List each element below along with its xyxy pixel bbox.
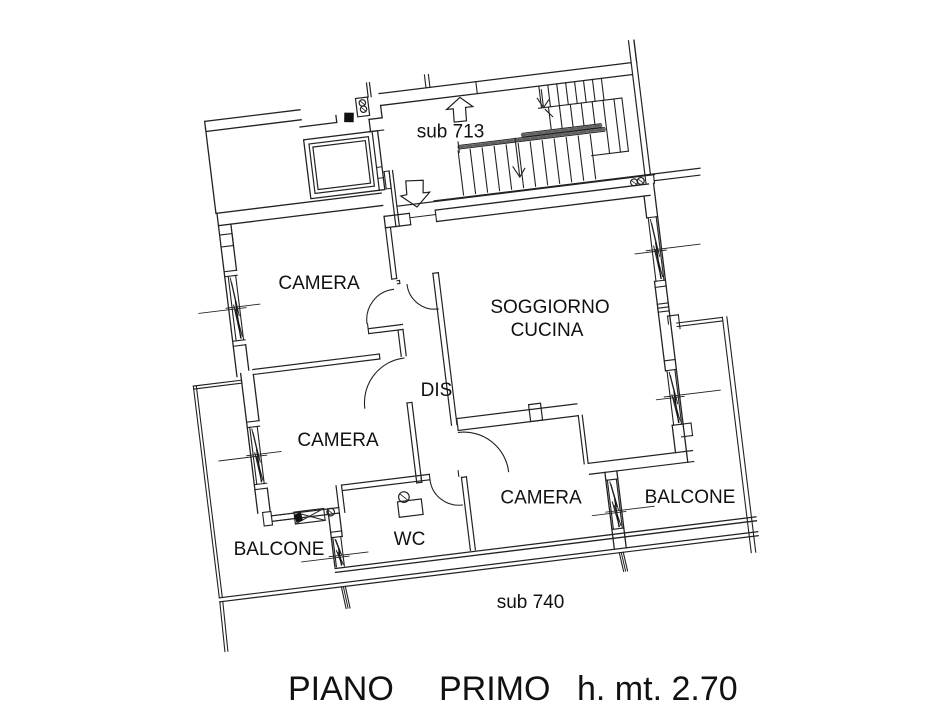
svg-text:sub 740: sub 740 <box>497 592 565 613</box>
svg-text:CUCINA: CUCINA <box>511 320 584 341</box>
svg-text:sub 713: sub 713 <box>417 122 485 143</box>
svg-text:BALCONE: BALCONE <box>645 487 736 508</box>
svg-text:h. mt. 2.70: h. mt. 2.70 <box>577 670 738 708</box>
svg-text:PIANO: PIANO <box>288 670 394 708</box>
svg-text:DIS: DIS <box>421 380 453 401</box>
svg-text:PRIMO: PRIMO <box>439 670 550 708</box>
svg-text:WC: WC <box>394 529 426 550</box>
svg-text:CAMERA: CAMERA <box>278 273 360 294</box>
svg-text:CAMERA: CAMERA <box>500 488 582 509</box>
svg-text:SOGGIORNO: SOGGIORNO <box>490 297 609 318</box>
svg-text:CAMERA: CAMERA <box>297 430 379 451</box>
svg-text:BALCONE: BALCONE <box>234 539 325 560</box>
